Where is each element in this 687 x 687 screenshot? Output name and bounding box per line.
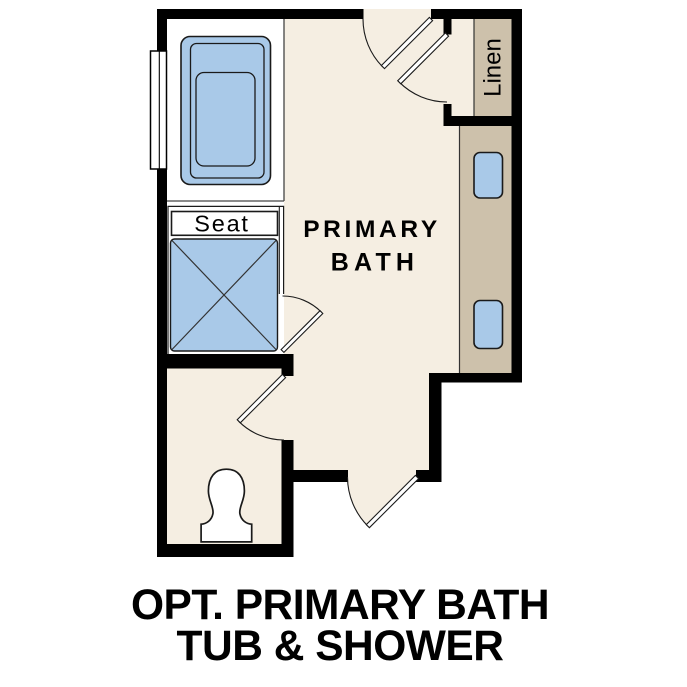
svg-text:Seat: Seat <box>194 211 250 237</box>
svg-text:OPT. PRIMARY BATH: OPT. PRIMARY BATH <box>131 582 549 629</box>
svg-text:BATH: BATH <box>331 249 419 277</box>
svg-text:PRIMARY: PRIMARY <box>303 216 441 243</box>
svg-text:Linen: Linen <box>480 38 507 97</box>
svg-text:TUB & SHOWER: TUB & SHOWER <box>177 623 504 670</box>
